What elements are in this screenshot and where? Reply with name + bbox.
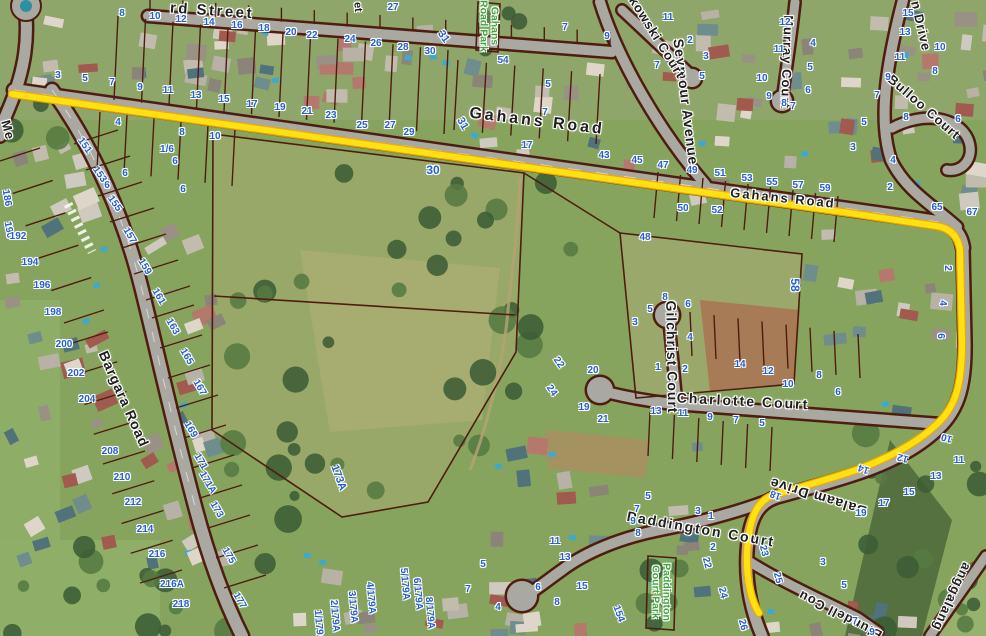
map-canvas[interactable]: rd StreetGahans RoadGahans RoadSeymour A… xyxy=(0,0,986,636)
aerial-imagery xyxy=(0,0,986,636)
